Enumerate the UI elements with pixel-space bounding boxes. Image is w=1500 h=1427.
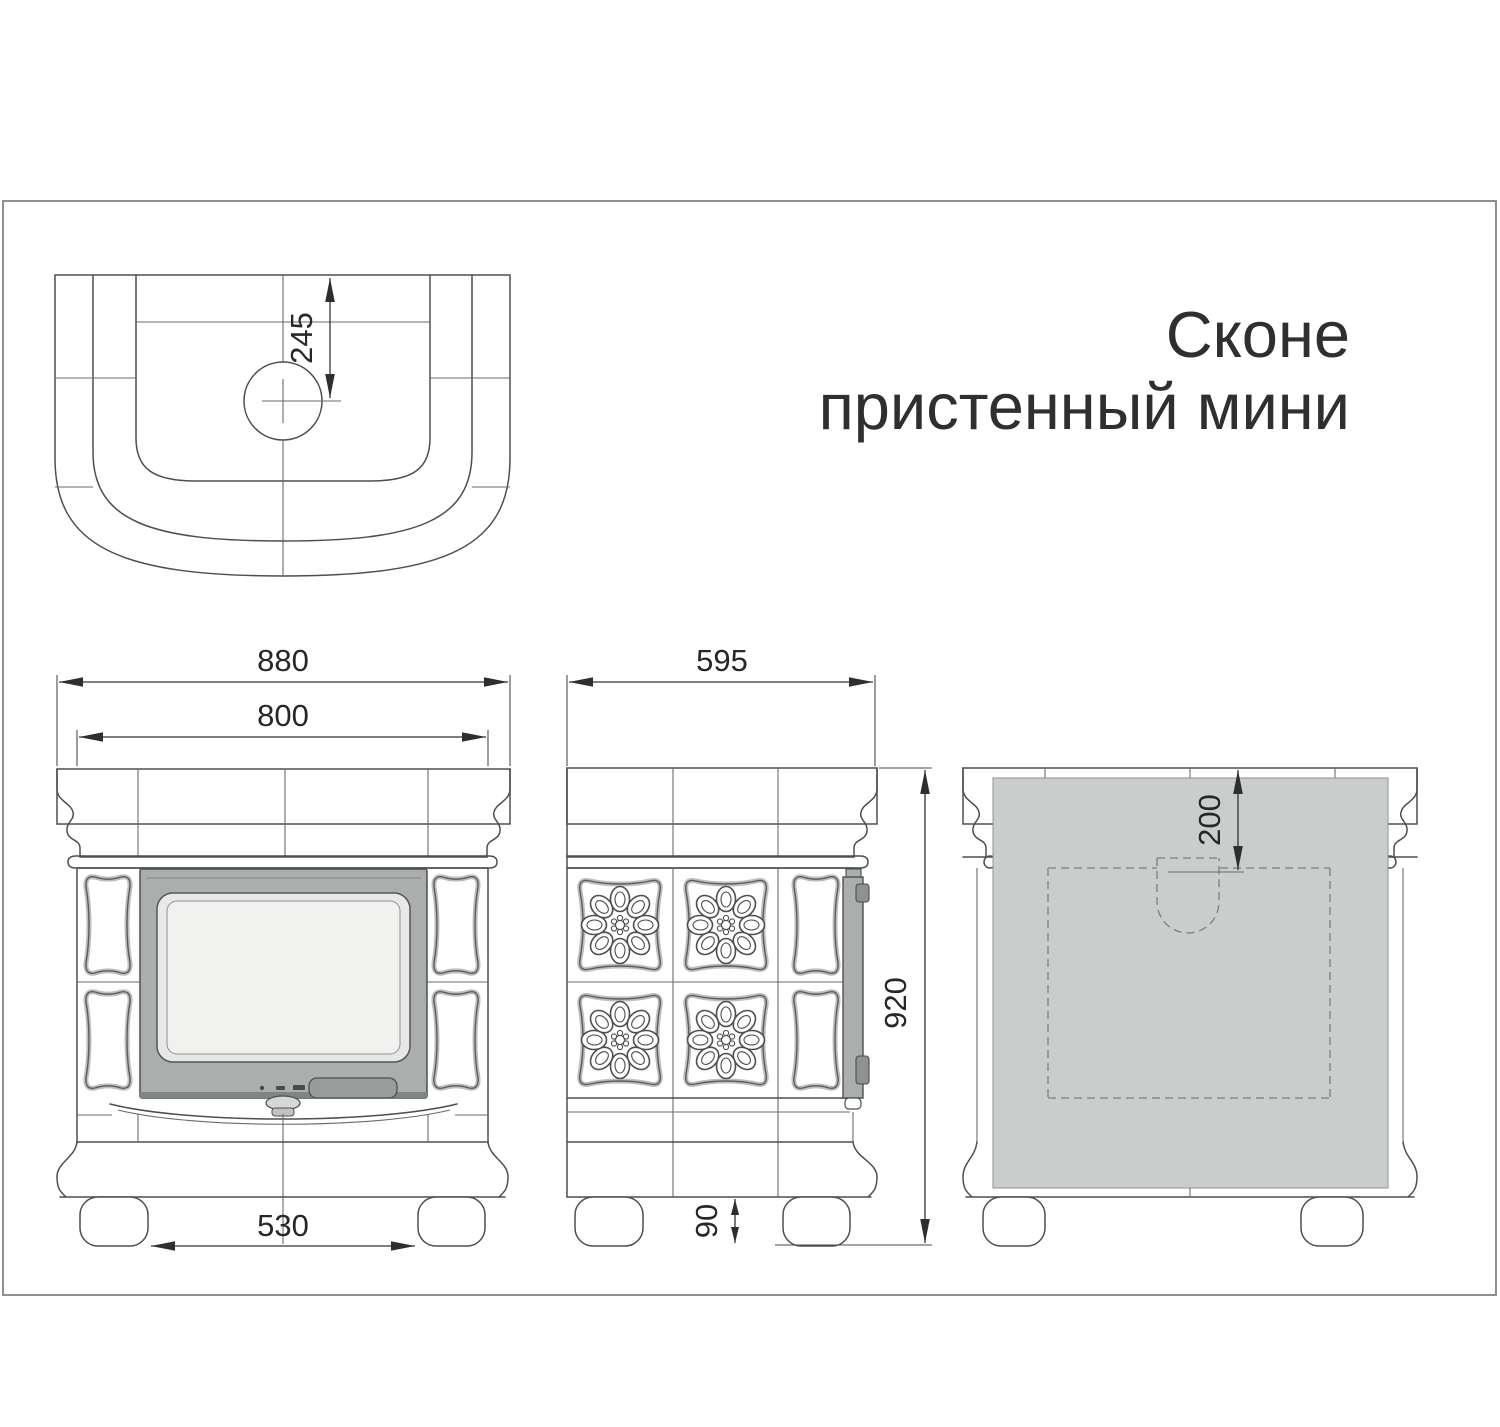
door-latch-tab [845, 1098, 861, 1109]
door-glass [167, 901, 400, 1054]
stove-drawing-canvas: Сконе пристенный мини 245 880 800 [0, 0, 1500, 1427]
dim-depth-label: 595 [696, 643, 748, 678]
rear-right-foot [1301, 1197, 1363, 1246]
side-cornice [567, 768, 877, 824]
rear-left-foot [983, 1197, 1045, 1246]
door-vent-slot [293, 1085, 305, 1090]
dim-height-label: 920 [878, 977, 913, 1029]
door-vent-slot [276, 1086, 285, 1090]
air-control-slider [309, 1078, 397, 1098]
title-block: Сконе пристенный мини [819, 298, 1350, 443]
dim-body-width-label: 800 [257, 698, 309, 733]
door-hinge-bottom [856, 1056, 869, 1084]
front-left-foot [80, 1197, 148, 1246]
top-view: 245 [55, 275, 510, 576]
dim-overall-width-label: 880 [257, 643, 309, 678]
dim-flue-top-offset-label: 200 [1192, 794, 1227, 846]
side-front-foot [575, 1197, 643, 1246]
door-side-profile [843, 869, 869, 1109]
dim-flue-offset-label: 245 [284, 312, 319, 364]
front-cornice [57, 769, 510, 824]
door-indicator-dot [260, 1086, 264, 1090]
side-rear-foot [783, 1197, 850, 1246]
product-title-line1: Сконе [1166, 298, 1350, 371]
dim-foot-height-label: 90 [689, 1204, 724, 1238]
product-title-line2: пристенный мини [819, 370, 1350, 443]
front-view: 880 800 [57, 643, 510, 1246]
firebox-door [140, 869, 427, 1098]
rear-heat-shield-panel [993, 778, 1388, 1188]
front-right-foot [418, 1197, 485, 1246]
technical-drawing-page: Сконе пристенный мини 245 880 800 [0, 0, 1500, 1427]
rear-view: 200 [963, 768, 1417, 1246]
side-view: 595 [567, 643, 932, 1246]
dim-feet-spacing-label: 530 [257, 1208, 309, 1243]
door-hinge-top [856, 884, 869, 902]
